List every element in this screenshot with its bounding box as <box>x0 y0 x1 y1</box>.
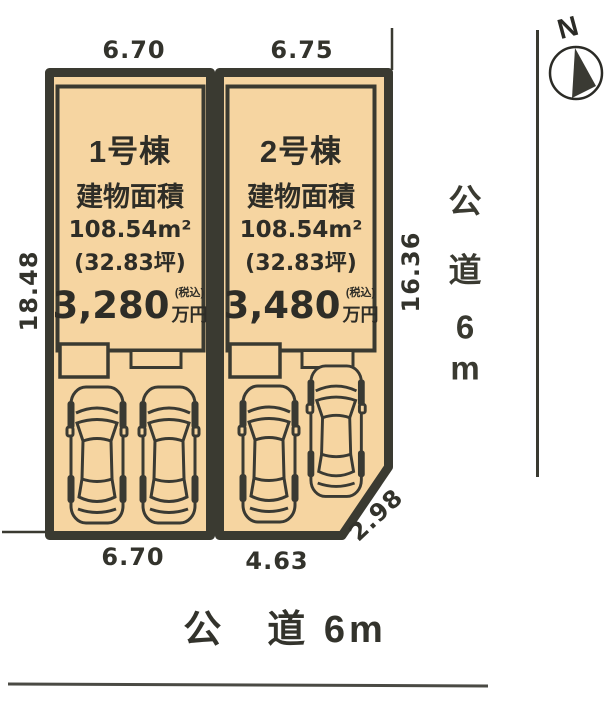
plot-2-info: 2号棟 建物面積 108.54m² (32.83坪) 3,480 (税込) 万円 <box>223 126 378 327</box>
plot-1-info: 1号棟 建物面積 108.54m² (32.83坪) 3,280 (税込) 万円 <box>52 126 207 327</box>
plot-1-tax-note: (税込) <box>175 284 204 300</box>
plot-1-area-m2: 108.54m² <box>52 217 207 243</box>
plot-2-price-row: 3,480 (税込) 万円 <box>223 284 378 327</box>
dim-left-boundary: 18.48 <box>17 251 41 332</box>
plot-1-price-row: 3,280 (税込) 万円 <box>52 284 207 327</box>
road-right-label-char: 公 <box>449 185 482 218</box>
car-icon <box>307 366 365 497</box>
car-icon <box>67 387 127 523</box>
building-1-step <box>131 351 181 368</box>
dim-bottom-plot2: 4.63 <box>245 549 308 573</box>
car-icon <box>239 386 299 522</box>
plot-2-area-m2: 108.54m² <box>223 217 378 243</box>
road-right-label-char: 6 <box>456 311 474 344</box>
road-line-bottom <box>8 684 488 686</box>
plot-1-price: 3,280 <box>52 284 169 327</box>
plot-1-area-tsubo: (32.83坪) <box>52 245 207 277</box>
plot-2-area-tsubo: (32.83坪) <box>223 245 378 277</box>
road-right-label-char: m <box>450 352 479 385</box>
plot-2-price-suffix: (税込) 万円 <box>343 284 379 327</box>
road-right-label-char: 道 <box>449 254 482 287</box>
plot-1-price-unit: 万円 <box>172 301 208 327</box>
road-bottom-label: 公 道 6m <box>183 611 386 649</box>
site-plan-drawing <box>0 0 607 704</box>
plot-2-price: 3,480 <box>223 284 340 327</box>
building-1-porch <box>60 344 108 377</box>
dim-right-boundary: 16.36 <box>399 232 423 313</box>
plot-1-price-suffix: (税込) 万円 <box>172 284 208 327</box>
site-plan: 6.70 6.75 18.48 16.36 6.70 4.63 2.98 1号棟… <box>0 0 607 704</box>
dim-bottom-plot1: 6.70 <box>101 545 164 569</box>
dim-top-plot1: 6.70 <box>102 38 165 62</box>
plot-1-area-label: 建物面積 <box>52 175 207 214</box>
plot-1-title: 1号棟 <box>52 126 207 171</box>
plot-2-area-label: 建物面積 <box>223 175 378 214</box>
dim-top-plot2: 6.75 <box>270 38 333 62</box>
plot-2-tax-note: (税込) <box>346 284 375 300</box>
plot-2-price-unit: 万円 <box>343 301 379 327</box>
plot-2-title: 2号棟 <box>223 126 378 171</box>
building-2-porch <box>230 344 280 377</box>
car-icon <box>139 387 199 523</box>
